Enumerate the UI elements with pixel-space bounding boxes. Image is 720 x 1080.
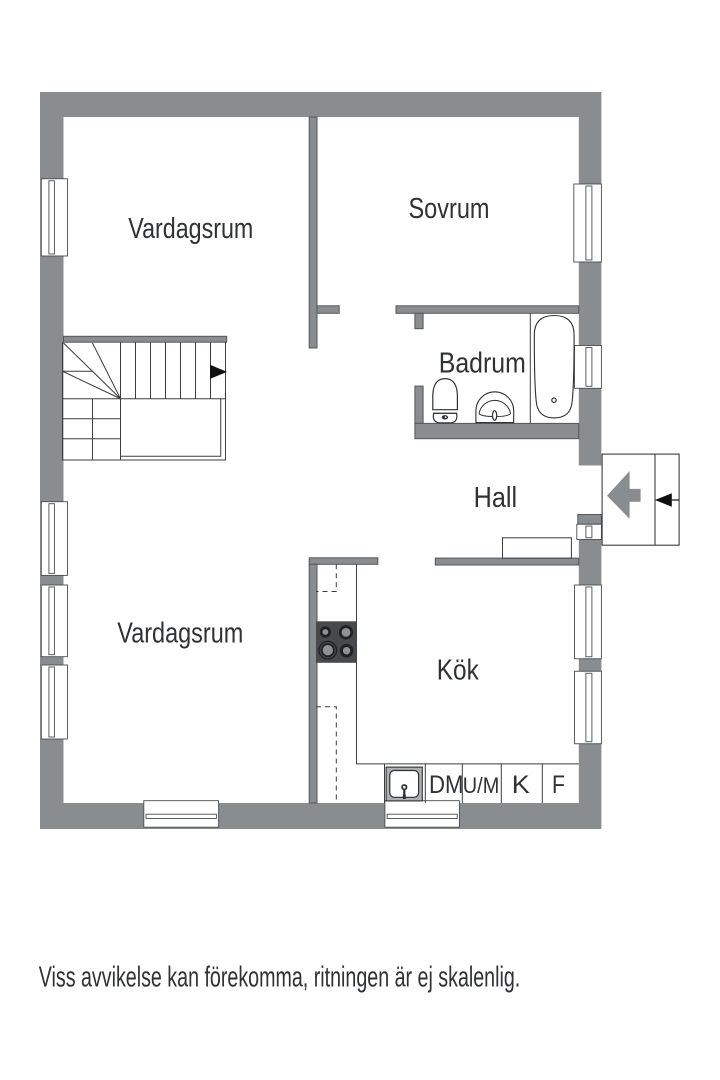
svg-text:DM: DM [429, 771, 464, 799]
svg-text:U/M: U/M [463, 773, 500, 798]
svg-text:K: K [512, 771, 530, 799]
svg-text:Hall: Hall [474, 482, 517, 514]
svg-text:Vardagsrum: Vardagsrum [117, 617, 243, 649]
svg-text:Viss avvikelse kan förekomma,: Viss avvikelse kan förekomma, ritningen … [39, 961, 521, 993]
svg-text:F: F [552, 771, 565, 799]
svg-text:Vardagsrum: Vardagsrum [128, 213, 253, 245]
svg-text:Kök: Kök [437, 655, 479, 687]
svg-text:Badrum: Badrum [439, 348, 526, 380]
svg-text:Sovrum: Sovrum [409, 193, 490, 225]
